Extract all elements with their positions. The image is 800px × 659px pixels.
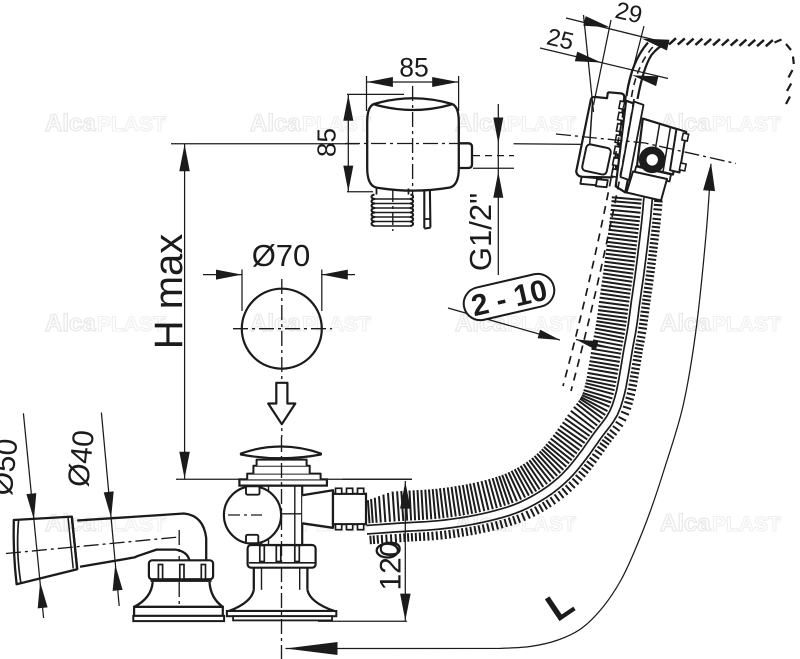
svg-text:PLAST: PLAST [712, 113, 781, 136]
svg-text:Alca: Alca [45, 110, 96, 137]
svg-text:®: ® [775, 115, 782, 125]
svg-text:Ø70: Ø70 [252, 238, 311, 273]
svg-text:85: 85 [312, 128, 342, 157]
svg-text:®: ® [775, 315, 782, 325]
svg-text:Ø40: Ø40 [62, 429, 101, 489]
svg-text:H max: H max [147, 234, 191, 350]
svg-text:120: 120 [375, 540, 408, 590]
svg-text:PLAST: PLAST [712, 313, 781, 336]
svg-text:Alca: Alca [45, 310, 96, 337]
svg-text:®: ® [160, 515, 167, 525]
svg-text:G1/2": G1/2" [463, 193, 498, 271]
svg-text:Alca: Alca [660, 510, 711, 537]
svg-text:PLAST: PLAST [97, 113, 166, 136]
svg-text:®: ® [570, 115, 577, 125]
svg-text:PLAST: PLAST [302, 313, 371, 336]
svg-text:Alca: Alca [250, 310, 301, 337]
svg-text:®: ® [160, 115, 167, 125]
svg-text:PLAST: PLAST [712, 513, 781, 536]
svg-text:®: ® [365, 315, 372, 325]
svg-text:Alca: Alca [250, 110, 301, 137]
svg-text:®: ® [570, 315, 577, 325]
svg-text:85: 85 [399, 53, 428, 83]
svg-text:®: ® [775, 515, 782, 525]
svg-text:®: ® [570, 515, 577, 525]
svg-text:Alca: Alca [660, 310, 711, 337]
svg-text:PLAST: PLAST [507, 113, 576, 136]
svg-text:Alca: Alca [45, 510, 96, 537]
